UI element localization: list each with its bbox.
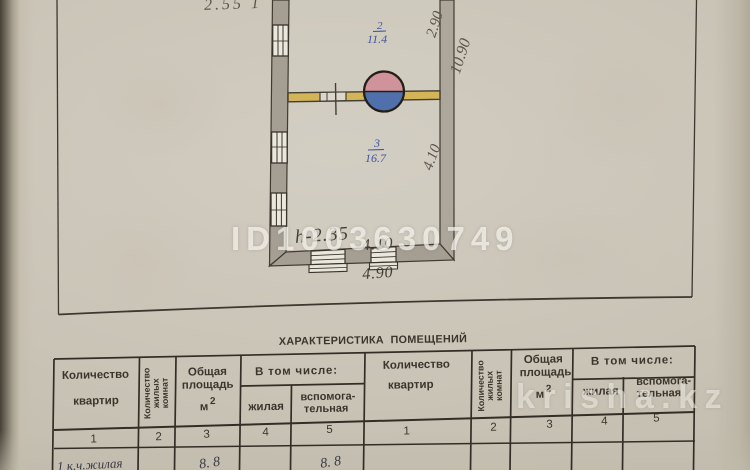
svg-text:4.90: 4.90: [362, 264, 394, 283]
svg-text:16.7: 16.7: [365, 151, 387, 165]
svg-text:2.55 1: 2.55 1: [204, 0, 263, 14]
svg-text:В том числе:: В том числе:: [255, 365, 338, 379]
svg-text:1 к.ч.жилая: 1 к.ч.жилая: [57, 455, 123, 470]
svg-text:Количество: Количество: [383, 359, 450, 372]
svg-text:вспомога-: вспомога-: [300, 390, 355, 403]
svg-text:1: 1: [403, 425, 410, 437]
svg-text:В том числе:: В том числе:: [591, 354, 674, 368]
svg-text:11.4: 11.4: [367, 32, 387, 46]
svg-text:2: 2: [377, 20, 383, 32]
svg-text:тельная: тельная: [304, 403, 349, 416]
svg-text:8. 8: 8. 8: [198, 455, 221, 470]
svg-text:Общая: Общая: [524, 353, 563, 366]
svg-text:3: 3: [546, 419, 553, 431]
svg-text:8. 8: 8. 8: [319, 454, 342, 470]
svg-text:комнат: комнат: [493, 370, 504, 401]
svg-text:4: 4: [262, 427, 269, 439]
svg-text:Количество: Количество: [62, 369, 129, 382]
svg-text:квартир: квартир: [388, 379, 434, 392]
svg-text:ХАРАКТЕРИСТИКА ПОМЕЩЕНИЙ: ХАРАКТЕРИСТИКА ПОМЕЩЕНИЙ: [279, 332, 467, 348]
svg-text:4: 4: [601, 416, 608, 428]
svg-text:3: 3: [203, 429, 210, 441]
svg-text:2: 2: [210, 396, 216, 407]
svg-text:Общая: Общая: [188, 366, 227, 379]
svg-text:1: 1: [90, 433, 97, 445]
svg-text:площадь: площадь: [182, 379, 234, 392]
svg-text:2: 2: [155, 431, 162, 443]
svg-text:жилая: жилая: [247, 401, 284, 414]
svg-text:3: 3: [373, 136, 380, 150]
svg-text:квартир: квартир: [73, 395, 119, 408]
svg-text:м: м: [200, 401, 209, 413]
svg-text:5: 5: [326, 424, 333, 436]
svg-text:2: 2: [490, 422, 497, 434]
svg-text:комнат: комнат: [160, 377, 171, 408]
